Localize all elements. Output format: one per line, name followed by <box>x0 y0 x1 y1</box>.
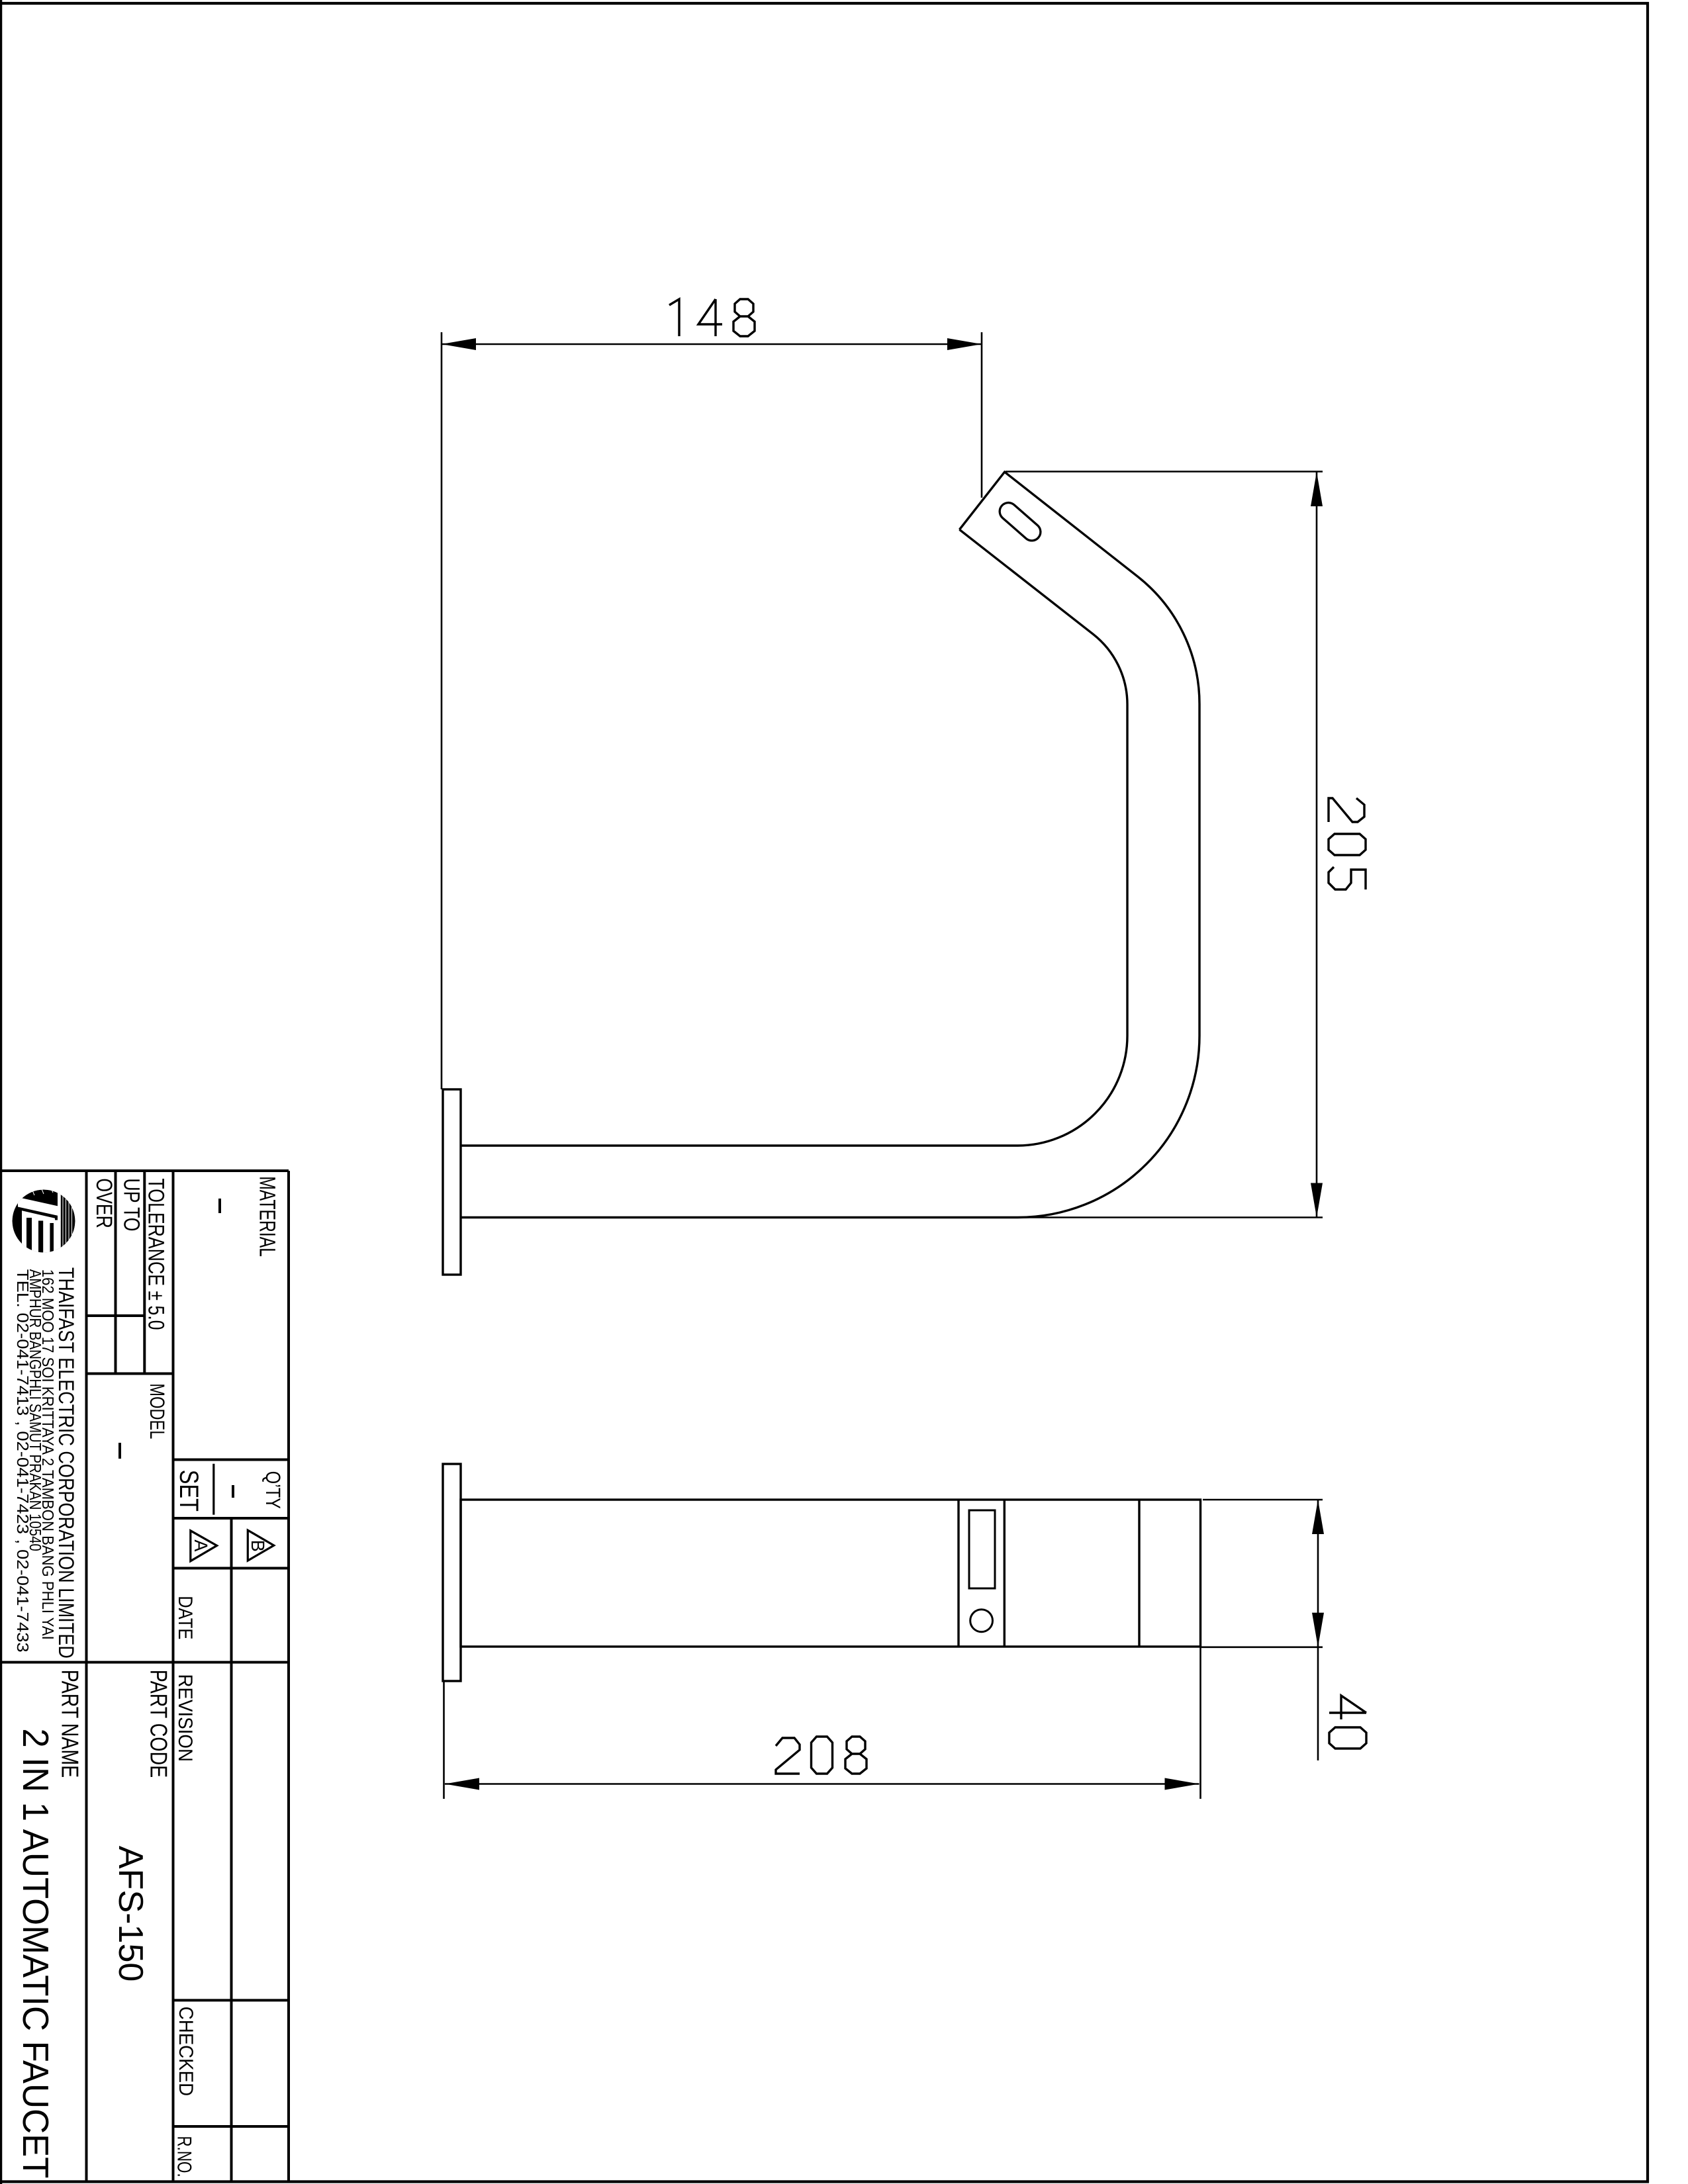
svg-text:AFS-150: AFS-150 <box>111 1846 150 1982</box>
svg-text:CHECKED: CHECKED <box>175 2007 197 2096</box>
svg-text:B: B <box>248 1540 268 1552</box>
svg-text:PART CODE: PART CODE <box>145 1670 172 1778</box>
svg-text:Q’TY: Q’TY <box>261 1471 285 1509</box>
svg-text:MATERIAL: MATERIAL <box>255 1176 280 1257</box>
svg-text:UP TO: UP TO <box>119 1178 144 1231</box>
svg-text:OVER: OVER <box>91 1178 117 1228</box>
svg-text:A: A <box>191 1539 211 1551</box>
svg-text:PART NAME: PART NAME <box>56 1670 83 1778</box>
svg-text:DATE: DATE <box>174 1596 196 1639</box>
svg-text:SET: SET <box>174 1470 203 1512</box>
svg-text:TOLERANCE ± 5.0: TOLERANCE ± 5.0 <box>143 1178 168 1330</box>
svg-text:MODEL: MODEL <box>146 1383 169 1439</box>
svg-text:TEL. 02-041-7413 , 02-041-7423: TEL. 02-041-7413 , 02-041-7423 , 02-041-… <box>13 1269 31 1653</box>
svg-text:R.NO.: R.NO. <box>173 2136 195 2177</box>
svg-text:REVISION: REVISION <box>174 1674 196 1762</box>
svg-text:2 IN 1 AUTOMATIC FAUCET: 2 IN 1 AUTOMATIC FAUCET <box>15 1729 56 2179</box>
svg-text:THAIFAST ELECTRIC CORPORATION: THAIFAST ELECTRIC CORPORATION LIMITED <box>54 1267 79 1659</box>
